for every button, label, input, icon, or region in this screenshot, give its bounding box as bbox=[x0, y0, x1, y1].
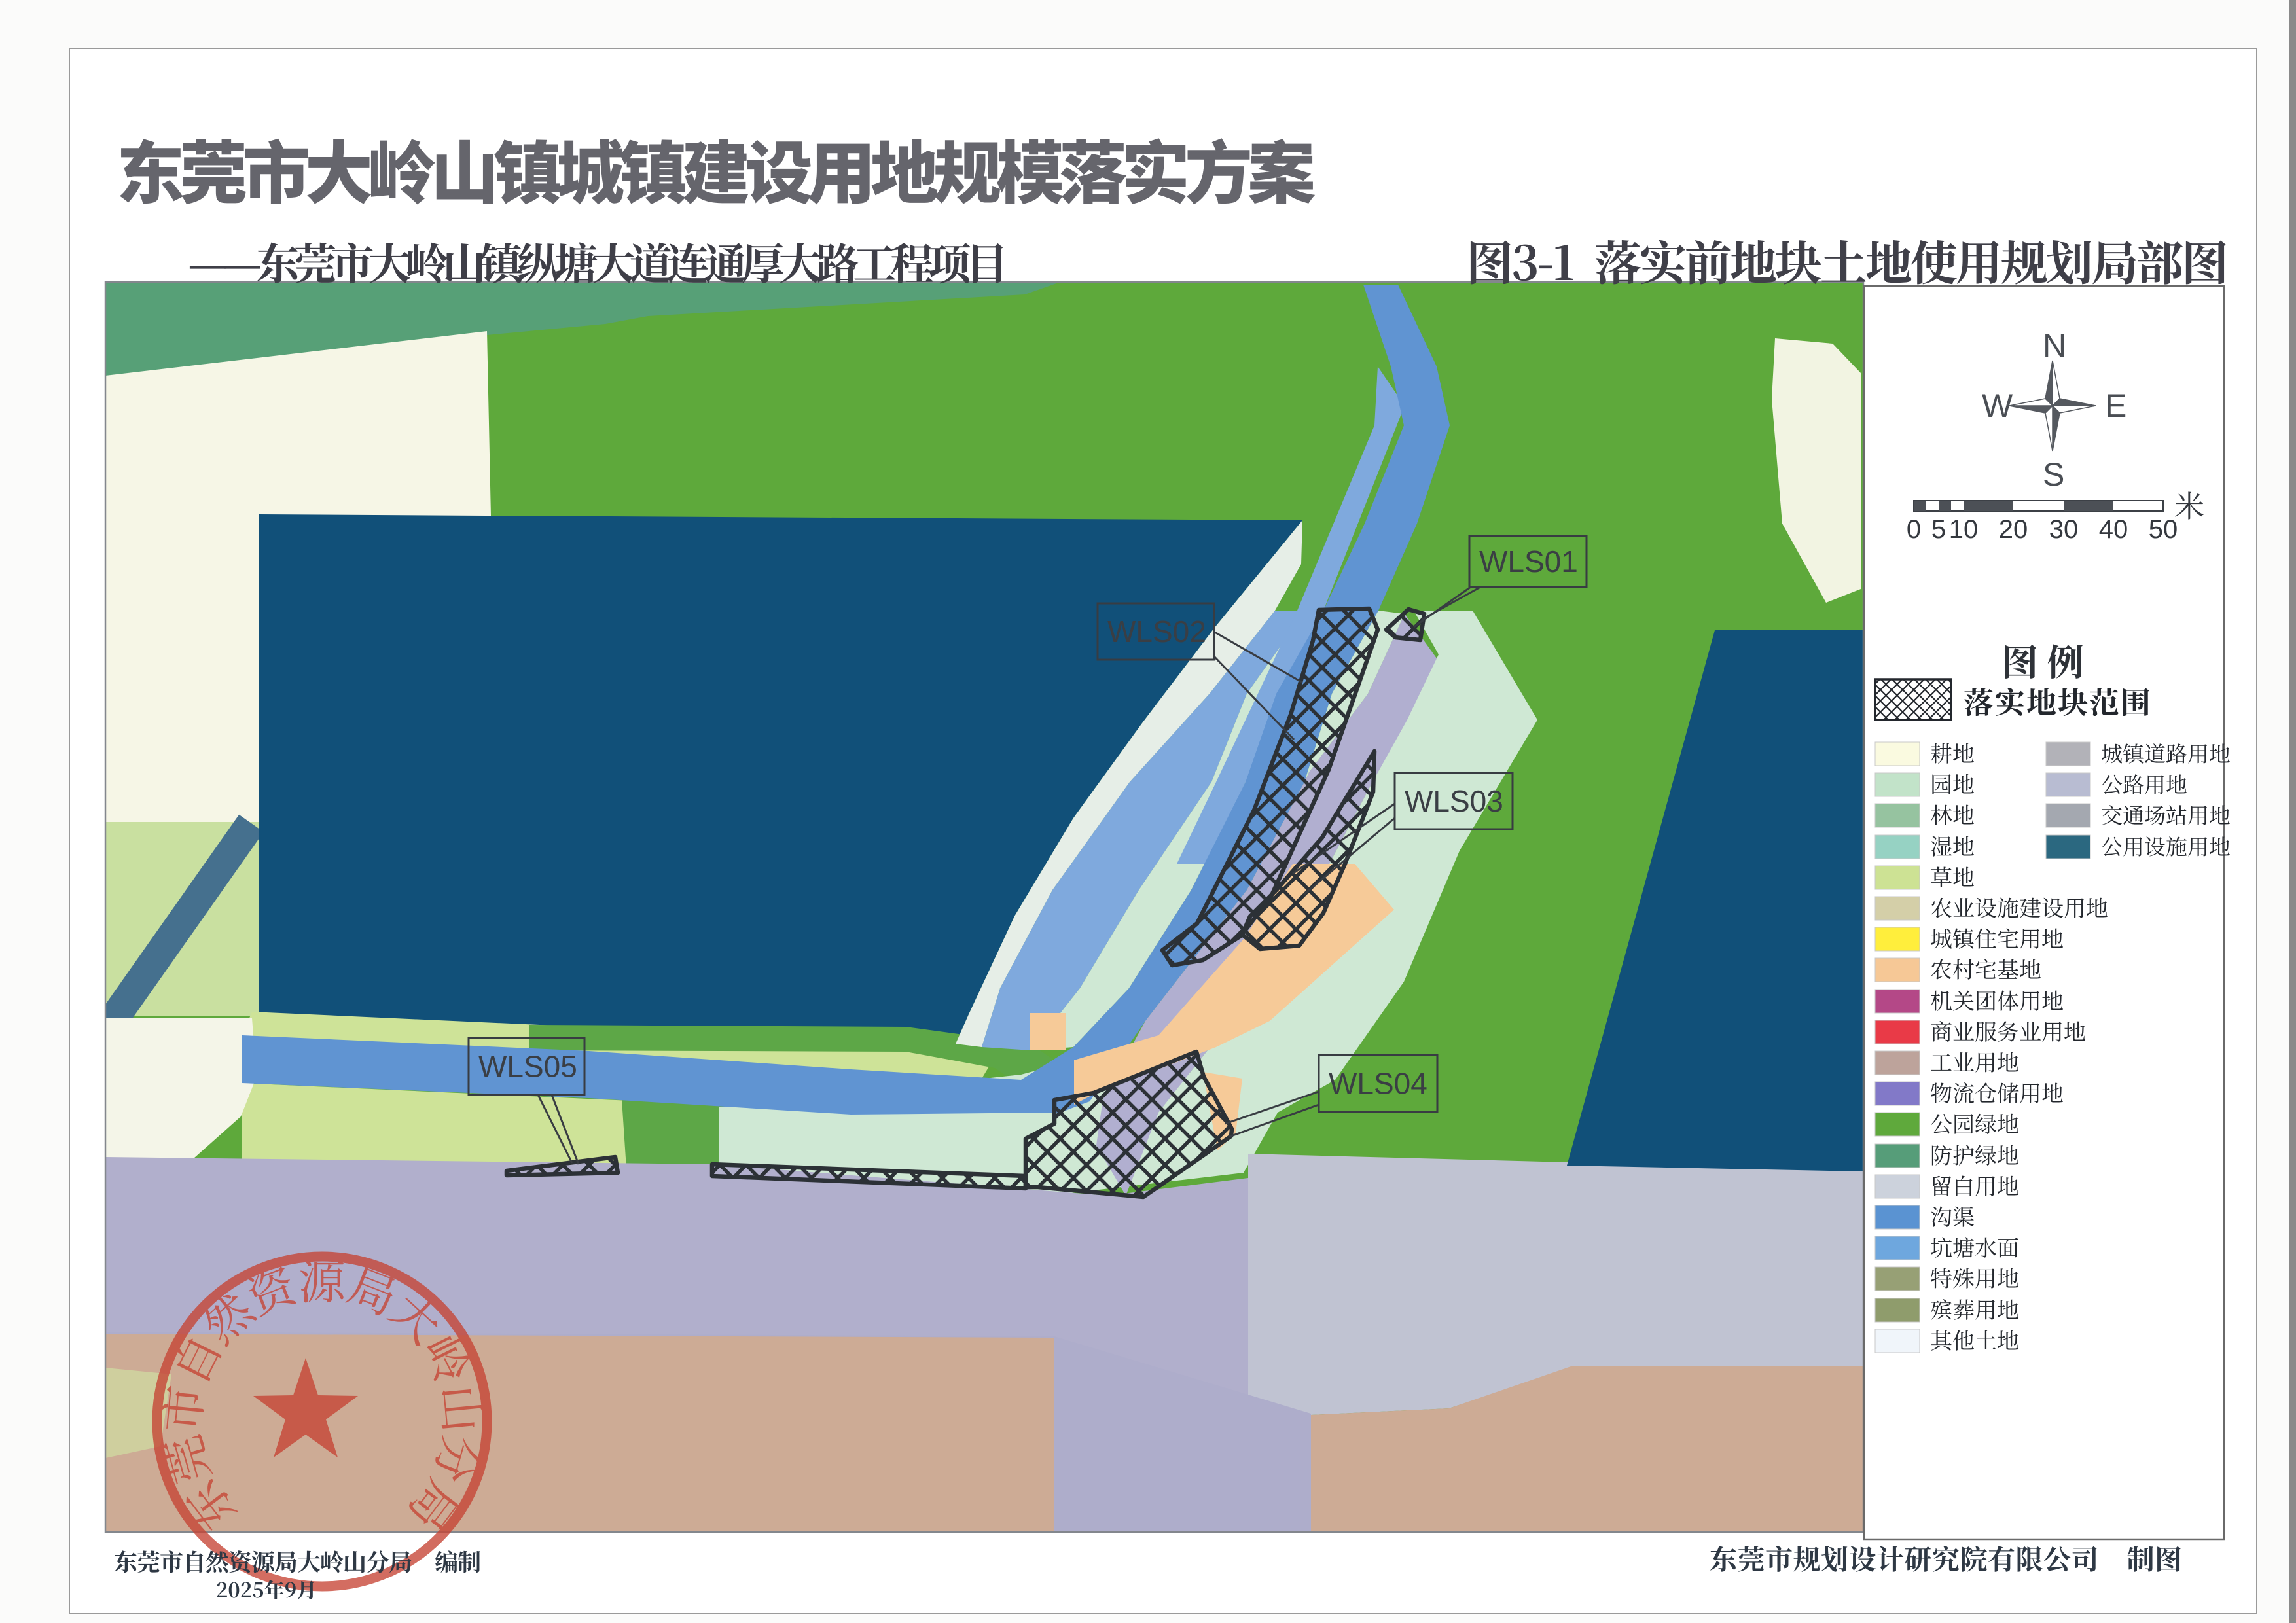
svg-text:5: 5 bbox=[1931, 515, 1946, 544]
svg-text:WLS05: WLS05 bbox=[478, 1050, 577, 1084]
svg-text:20: 20 bbox=[1999, 515, 2028, 544]
svg-text:WLS02: WLS02 bbox=[1107, 615, 1206, 649]
svg-text:WLS01: WLS01 bbox=[1479, 544, 1578, 579]
svg-text:50: 50 bbox=[2149, 515, 2178, 544]
svg-text:WLS04: WLS04 bbox=[1329, 1067, 1427, 1101]
svg-text:N: N bbox=[2043, 327, 2066, 364]
svg-text:S: S bbox=[2043, 456, 2064, 493]
svg-text:30: 30 bbox=[2049, 515, 2079, 544]
svg-text:E: E bbox=[2105, 387, 2126, 424]
svg-text:W: W bbox=[1982, 387, 2013, 424]
svg-text:40: 40 bbox=[2099, 515, 2128, 544]
svg-text:WLS03: WLS03 bbox=[1405, 784, 1503, 818]
svg-text:10: 10 bbox=[1949, 515, 1979, 544]
svg-text:0: 0 bbox=[1907, 515, 1921, 544]
